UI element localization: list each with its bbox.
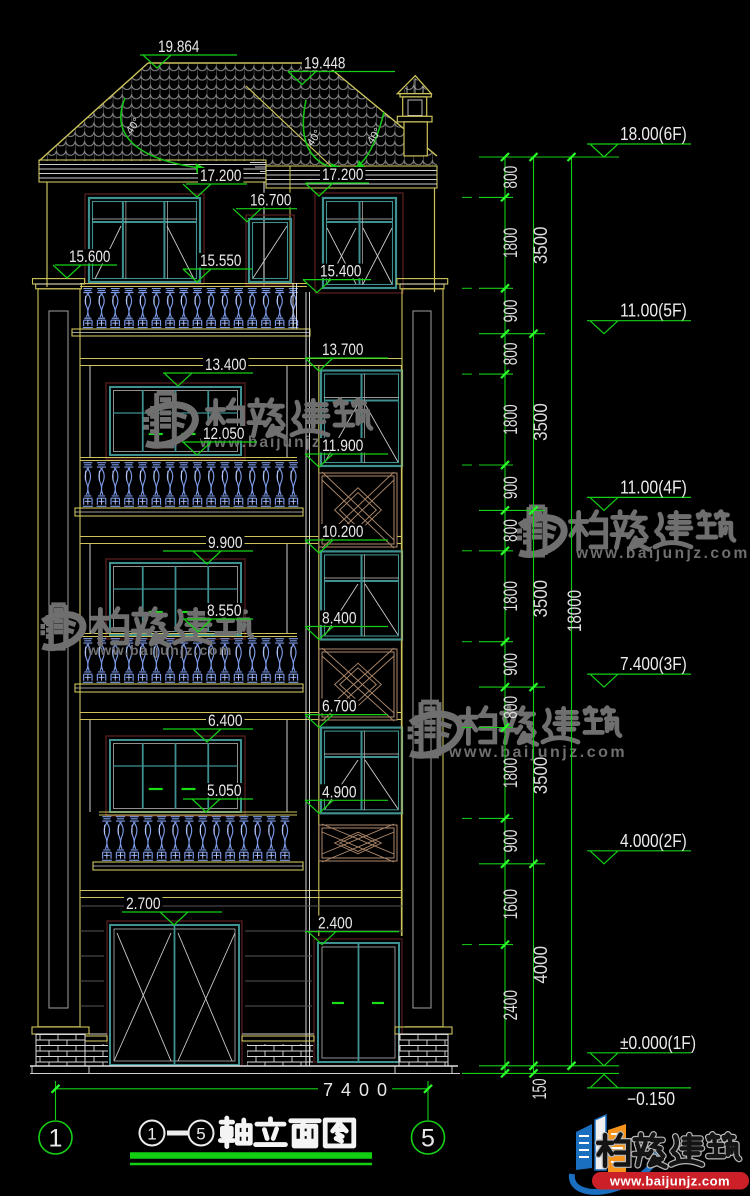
svg-text:10.200: 10.200 <box>322 523 363 541</box>
svg-text:www.baijunjz.com: www.baijunjz.com <box>609 1174 730 1189</box>
svg-text:13.700: 13.700 <box>322 341 363 359</box>
svg-text:2400: 2400 <box>501 990 522 1020</box>
svg-text:900: 900 <box>501 653 522 676</box>
svg-text:15.400: 15.400 <box>320 263 361 281</box>
svg-text:2.400: 2.400 <box>318 915 353 933</box>
svg-text:8.400: 8.400 <box>322 610 357 628</box>
svg-text:4000: 4000 <box>531 946 552 984</box>
svg-text:±0.000(1F): ±0.000(1F) <box>620 1033 696 1053</box>
svg-text:17.200: 17.200 <box>200 167 241 185</box>
svg-text:11.00(4F): 11.00(4F) <box>620 477 687 497</box>
svg-text:16.700: 16.700 <box>250 192 291 210</box>
svg-text:11.00(5F): 11.00(5F) <box>620 301 687 321</box>
svg-text:www.baijunjz.com: www.baijunjz.com <box>87 642 233 658</box>
svg-text:1800: 1800 <box>501 581 522 611</box>
svg-text:18000: 18000 <box>565 590 586 632</box>
svg-text:800: 800 <box>501 343 522 366</box>
svg-text:4.900: 4.900 <box>322 783 357 801</box>
svg-text:3500: 3500 <box>531 580 552 618</box>
svg-text:7.400(3F): 7.400(3F) <box>620 654 687 674</box>
svg-text:3500: 3500 <box>531 757 552 795</box>
svg-text:5: 5 <box>196 1125 205 1144</box>
svg-text:1800: 1800 <box>501 228 522 258</box>
svg-text:6.400: 6.400 <box>208 712 243 730</box>
svg-text:15.550: 15.550 <box>200 252 241 270</box>
svg-text:6.700: 6.700 <box>322 698 357 716</box>
svg-text:150: 150 <box>530 1079 551 1100</box>
svg-text:17.200: 17.200 <box>322 166 363 184</box>
svg-text:1: 1 <box>49 1125 63 1153</box>
svg-text:11.900: 11.900 <box>322 437 363 455</box>
svg-text:−0.150: −0.150 <box>627 1089 675 1109</box>
svg-text:900: 900 <box>501 476 522 499</box>
svg-text:12.050: 12.050 <box>203 425 244 443</box>
svg-text:15.600: 15.600 <box>69 248 110 266</box>
svg-text:18.00(6F): 18.00(6F) <box>620 124 687 144</box>
svg-text:5.050: 5.050 <box>207 782 242 800</box>
svg-text:1: 1 <box>147 1125 156 1144</box>
svg-text:900: 900 <box>501 830 522 853</box>
svg-text:1800: 1800 <box>501 758 522 788</box>
svg-text:3500: 3500 <box>531 403 552 441</box>
svg-text:19.448: 19.448 <box>304 55 345 73</box>
svg-text:800: 800 <box>501 166 522 189</box>
svg-text:5: 5 <box>421 1125 435 1153</box>
svg-text:8.550: 8.550 <box>207 602 242 620</box>
svg-text:1600: 1600 <box>501 889 522 919</box>
svg-text:3500: 3500 <box>531 227 552 265</box>
svg-text:www.baijunjz.com: www.baijunjz.com <box>575 545 750 562</box>
svg-text:800: 800 <box>501 696 522 719</box>
svg-text:2.700: 2.700 <box>126 895 161 913</box>
svg-text:19.864: 19.864 <box>158 38 199 56</box>
svg-text:900: 900 <box>501 300 522 323</box>
svg-text:4.000(2F): 4.000(2F) <box>620 831 687 851</box>
svg-text:13.400: 13.400 <box>205 356 246 374</box>
svg-text:1800: 1800 <box>501 404 522 434</box>
svg-text:800: 800 <box>501 519 522 542</box>
svg-text:9.900: 9.900 <box>208 534 243 552</box>
